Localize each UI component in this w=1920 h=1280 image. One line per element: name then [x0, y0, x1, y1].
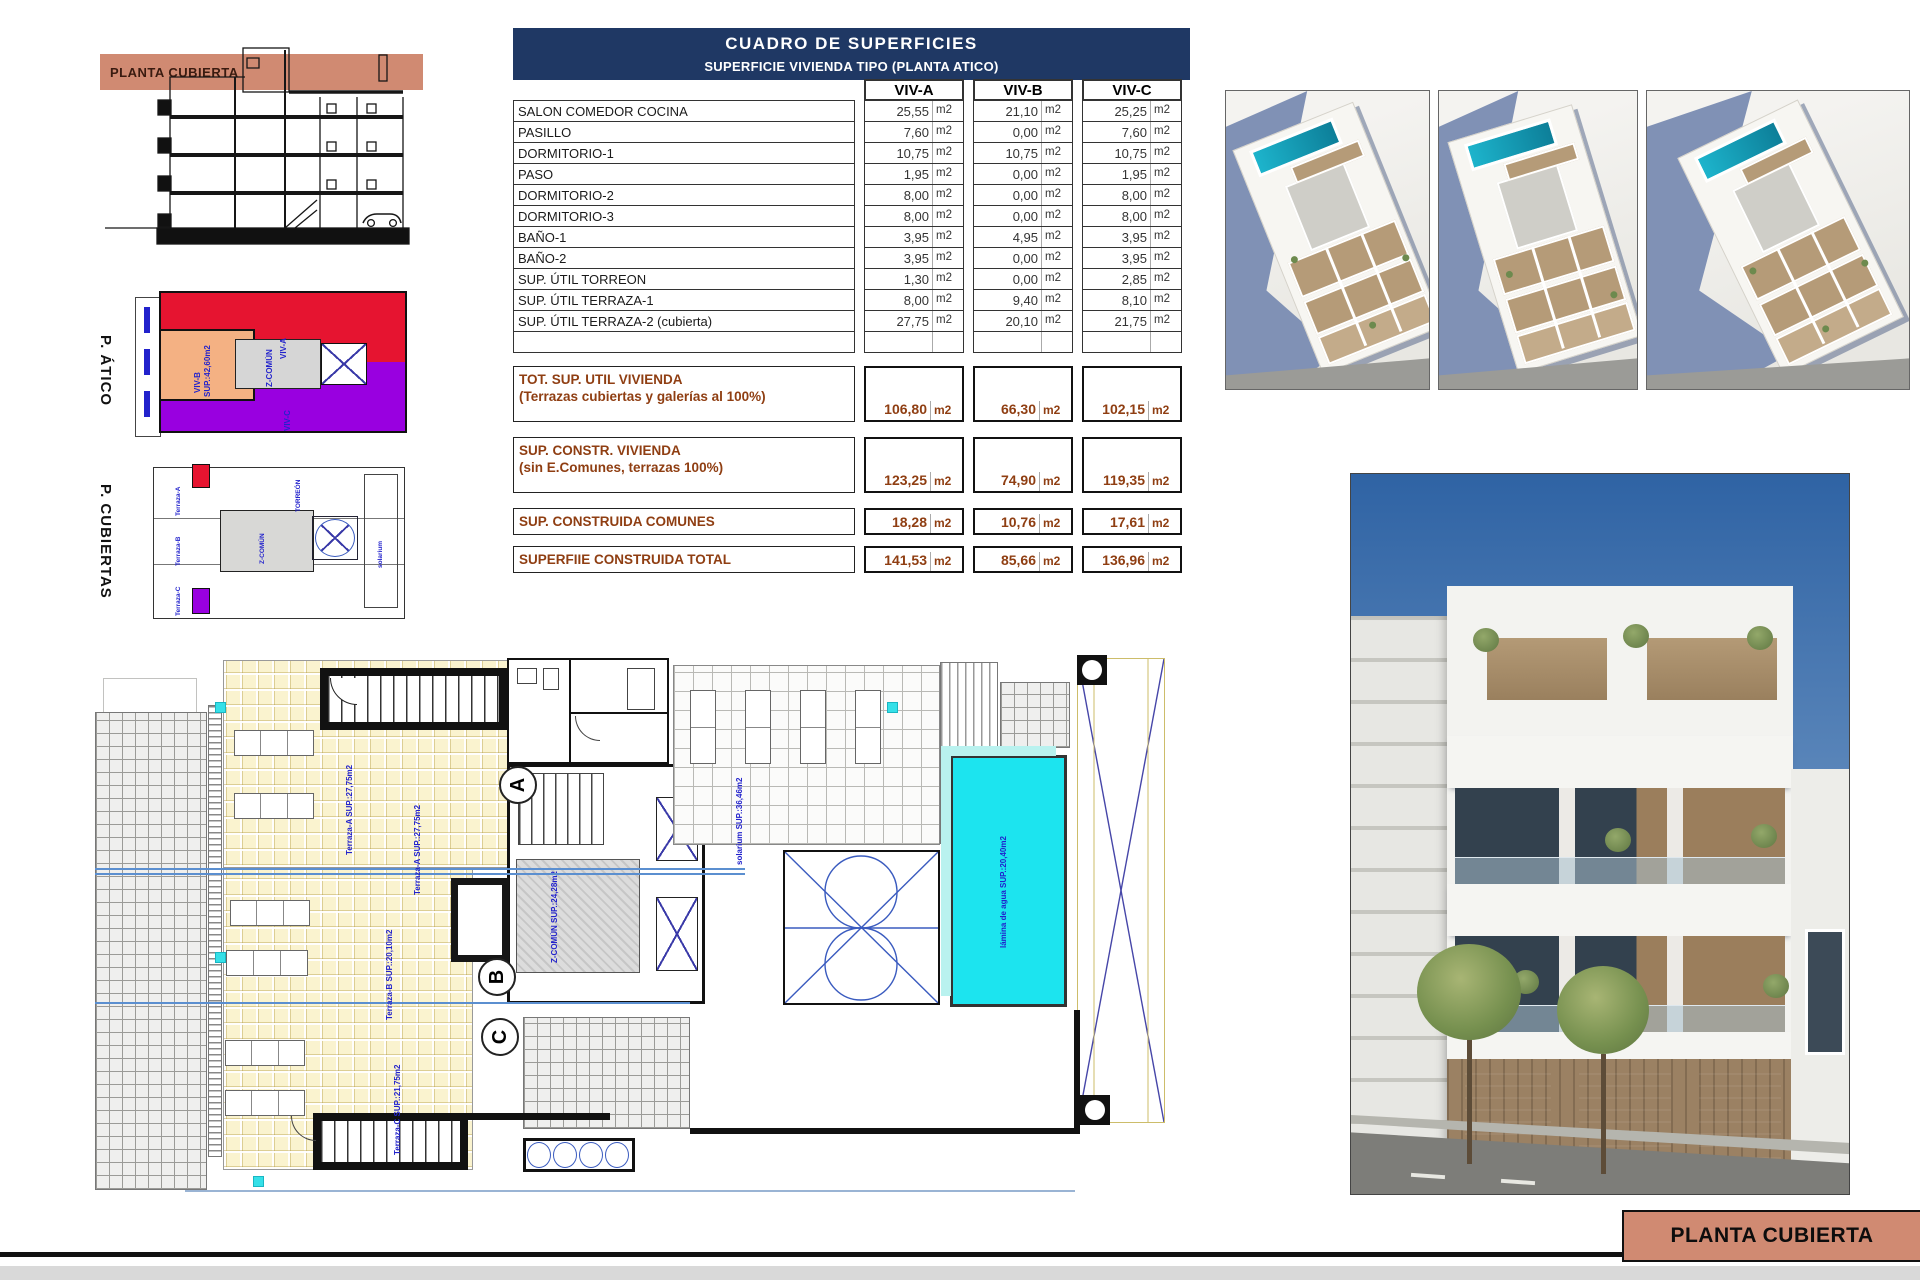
sheet-title: PLANTA CUBIERTA [1670, 1224, 1873, 1248]
terraza-a-label-2: Terraza-A SUP.:27,75m2 [413, 775, 422, 895]
cubiertas-side-label: P. CUBIERTAS [97, 471, 114, 611]
table-row: SUP. ÚTIL TORREON1,30m20,00m22,85m2 [513, 268, 1190, 290]
solarium-label: solarium SUP.:36,46m2 [735, 745, 744, 865]
bath-fixture [517, 668, 537, 684]
cubiertas-terraza-b-label: Terraza-B [174, 526, 183, 566]
section-drawing [95, 22, 430, 267]
column-header-viv-b: VIV-B [973, 79, 1073, 101]
gym-area [783, 850, 940, 1005]
facade-atico-level [1447, 620, 1793, 736]
cubiertas-terraza-a-label: Terraza-A [174, 476, 183, 516]
sheet-title-box: PLANTA CUBIERTA [1622, 1210, 1920, 1262]
roof-drain-box [1080, 1095, 1110, 1125]
table-row: DORMITORIO-38,00m20,00m28,00m2 [513, 205, 1190, 227]
column-header-viv-a: VIV-A [864, 79, 964, 101]
atico-diagram: P. ÁTICO VIV-A VIV-B SUP.:42,60m2 Z-COMÚ… [95, 283, 417, 451]
shaft-x [656, 897, 698, 971]
dimension-line [185, 1190, 1075, 1192]
areas-table-header: CUADRO DE SUPERFICIES SUPERFICIE VIVIEND… [513, 28, 1190, 80]
tree-trunk [1467, 1034, 1472, 1164]
bush [1605, 828, 1631, 852]
stairs-bottom [313, 1113, 468, 1170]
atico-common-label: Z-COMÚN [265, 341, 274, 387]
atico-dim-tick [144, 307, 150, 333]
building-section-view: PLANTA CUBIERTA [95, 22, 430, 267]
zcomun-label: Z-COMÚN SUP.:24,28m2 [550, 867, 559, 963]
atico-dim-tick [144, 391, 150, 417]
sun-lounger [745, 690, 771, 764]
sun-lounger [800, 690, 826, 764]
door-arc [575, 716, 600, 741]
sun-lounger [234, 793, 314, 819]
crossed-circles [785, 852, 938, 1003]
sheet-bottom-strip [0, 1266, 1920, 1280]
table-row: DORMITORIO-110,75m210,75m210,75m2 [513, 142, 1190, 164]
bush [1747, 626, 1773, 650]
plan-sheet: PLANTA CUBIERTA [0, 0, 1920, 1280]
neighbor-building-left [1351, 616, 1447, 1195]
terraza-a-label: Terraza-A SUP.:27,75m2 [345, 735, 354, 855]
sun-lounger [234, 730, 314, 756]
cubiertas-red-marker [192, 464, 210, 488]
cubiertas-stair-circle [312, 516, 358, 560]
atico-dim-tick [144, 349, 150, 375]
bush [1623, 624, 1649, 648]
unit-letter-a: A [499, 766, 537, 804]
roof-tiles-topright [1000, 682, 1070, 748]
sun-lounger [690, 690, 716, 764]
table-row: BAÑO-13,95m24,95m23,95m2 [513, 226, 1190, 248]
reserved-zone-x [1077, 658, 1165, 1123]
swimming-pool: lámina de agua SUP.:20,40m2 [950, 755, 1067, 1007]
roof-drain-box [1077, 655, 1107, 685]
atico-viv-a-label: VIV-A [279, 299, 288, 359]
atico-side-label: P. ÁTICO [97, 301, 114, 441]
terraza-c-label: Terraza-C SUP.:21,75m2 [393, 1035, 402, 1155]
cubiertas-diagram: P. CUBIERTAS Terraza-A Terraza-B Terraza… [95, 453, 417, 633]
skylight-row [523, 1138, 635, 1172]
sun-lounger [230, 900, 310, 926]
elevator [451, 878, 509, 962]
facade-render-photo [1350, 473, 1850, 1195]
summary-row: SUP. CONSTR. VIVIENDA(sin E.Comunes, ter… [513, 437, 1190, 493]
sun-lounger [226, 950, 308, 976]
roof-render-3 [1646, 90, 1910, 390]
table-row [513, 331, 1190, 353]
atico-plan: VIV-A VIV-B SUP.:42,60m2 Z-COMÚN VIV-C [159, 291, 407, 433]
roof-render-2 [1438, 90, 1638, 390]
torreon-rooms [507, 658, 669, 764]
table-row: PASILLO7,60m20,00m27,60m2 [513, 121, 1190, 143]
cubiertas-plan: Terraza-A Terraza-B Terraza-C Z-COMÚN TO… [153, 467, 405, 619]
sun-lounger [225, 1040, 305, 1066]
summary-row: TOT. SUP. UTIL VIVIENDA(Terrazas cubiert… [513, 366, 1190, 422]
roof-floor-plan: Z-COMÚN SUP.:24,28m2 A B C lámina de agu… [95, 650, 1210, 1235]
terraza-b-label: Terraza-B SUP.:20,10m2 [385, 900, 394, 1020]
table-row: BAÑO-23,95m20,00m23,95m2 [513, 247, 1190, 269]
atico-viv-b-sup-label: SUP.:42,60m2 [203, 333, 212, 397]
summary-row: SUP. CONSTRUIDA COMUNES18,28m210,76m217,… [513, 508, 1190, 535]
roof-render-1 [1225, 90, 1430, 390]
atico-elevator [321, 343, 367, 385]
cubiertas-terraza-c-label: Terraza-C [174, 576, 183, 616]
cubiertas-common-label: Z-COMÚN [258, 520, 267, 564]
table-row: SALON COMEDOR COCINA25,55m221,10m225,25m… [513, 100, 1190, 122]
table-row: PASO1,95m20,00m21,95m2 [513, 163, 1190, 185]
table-row: SUP. ÚTIL TERRAZA-18,00m29,40m28,10m2 [513, 289, 1190, 311]
bush [1751, 824, 1777, 848]
areas-table-title: CUADRO DE SUPERFICIES [513, 34, 1190, 54]
bush [1473, 628, 1499, 652]
sun-lounger [225, 1090, 305, 1116]
areas-table-body: SALON COMEDOR COCINA25,55m221,10m225,25m… [513, 100, 1190, 573]
summary-row: SUPERFIIE CONSTRUIDA TOTAL141,53m285,66m… [513, 546, 1190, 573]
atico-common-zone [235, 339, 321, 389]
bush [1763, 974, 1789, 998]
sheet-bottom-rule [0, 1252, 1624, 1257]
common-zone-hatch [516, 859, 640, 973]
atico-viv-b-label: VIV-B [193, 337, 202, 393]
neighbor-building-right [1791, 769, 1850, 1195]
areas-table: CUADRO DE SUPERFICIES SUPERFICIE VIVIEND… [513, 28, 1190, 573]
areas-table-column-header-row: VIV-A VIV-B VIV-C [513, 79, 1190, 101]
column-header-viv-c: VIV-C [1082, 79, 1182, 101]
neighbor-roof-tiles-left [95, 712, 207, 1190]
tree [1557, 966, 1649, 1054]
unit-letter-c: C [481, 1018, 519, 1056]
tree-trunk [1601, 1054, 1606, 1174]
table-row: SUP. ÚTIL TERRAZA-2 (cubierta)27,75m220,… [513, 310, 1190, 332]
tree [1417, 944, 1521, 1040]
cubiertas-common-zone [220, 510, 314, 572]
cubiertas-purple-marker [192, 588, 210, 614]
areas-table-subtitle: SUPERFICIE VIVIENDA TIPO (PLANTA ATICO) [513, 59, 1190, 74]
unit-letter-b: B [478, 958, 516, 996]
bed-fixture [627, 668, 655, 710]
cubiertas-torreon-label: TORREÓN [294, 472, 303, 512]
scaffold-strip [208, 705, 222, 1157]
sun-lounger [855, 690, 881, 764]
stairs-top [320, 668, 507, 730]
table-row: DORMITORIO-28,00m20,00m28,00m2 [513, 184, 1190, 206]
bath-fixture [543, 668, 559, 690]
cubiertas-solarium-label: solarium [376, 524, 385, 568]
pool-label: lámina de agua SUP.:20,40m2 [999, 828, 1008, 948]
atico-viv-c-label: VIV-C [283, 377, 292, 431]
